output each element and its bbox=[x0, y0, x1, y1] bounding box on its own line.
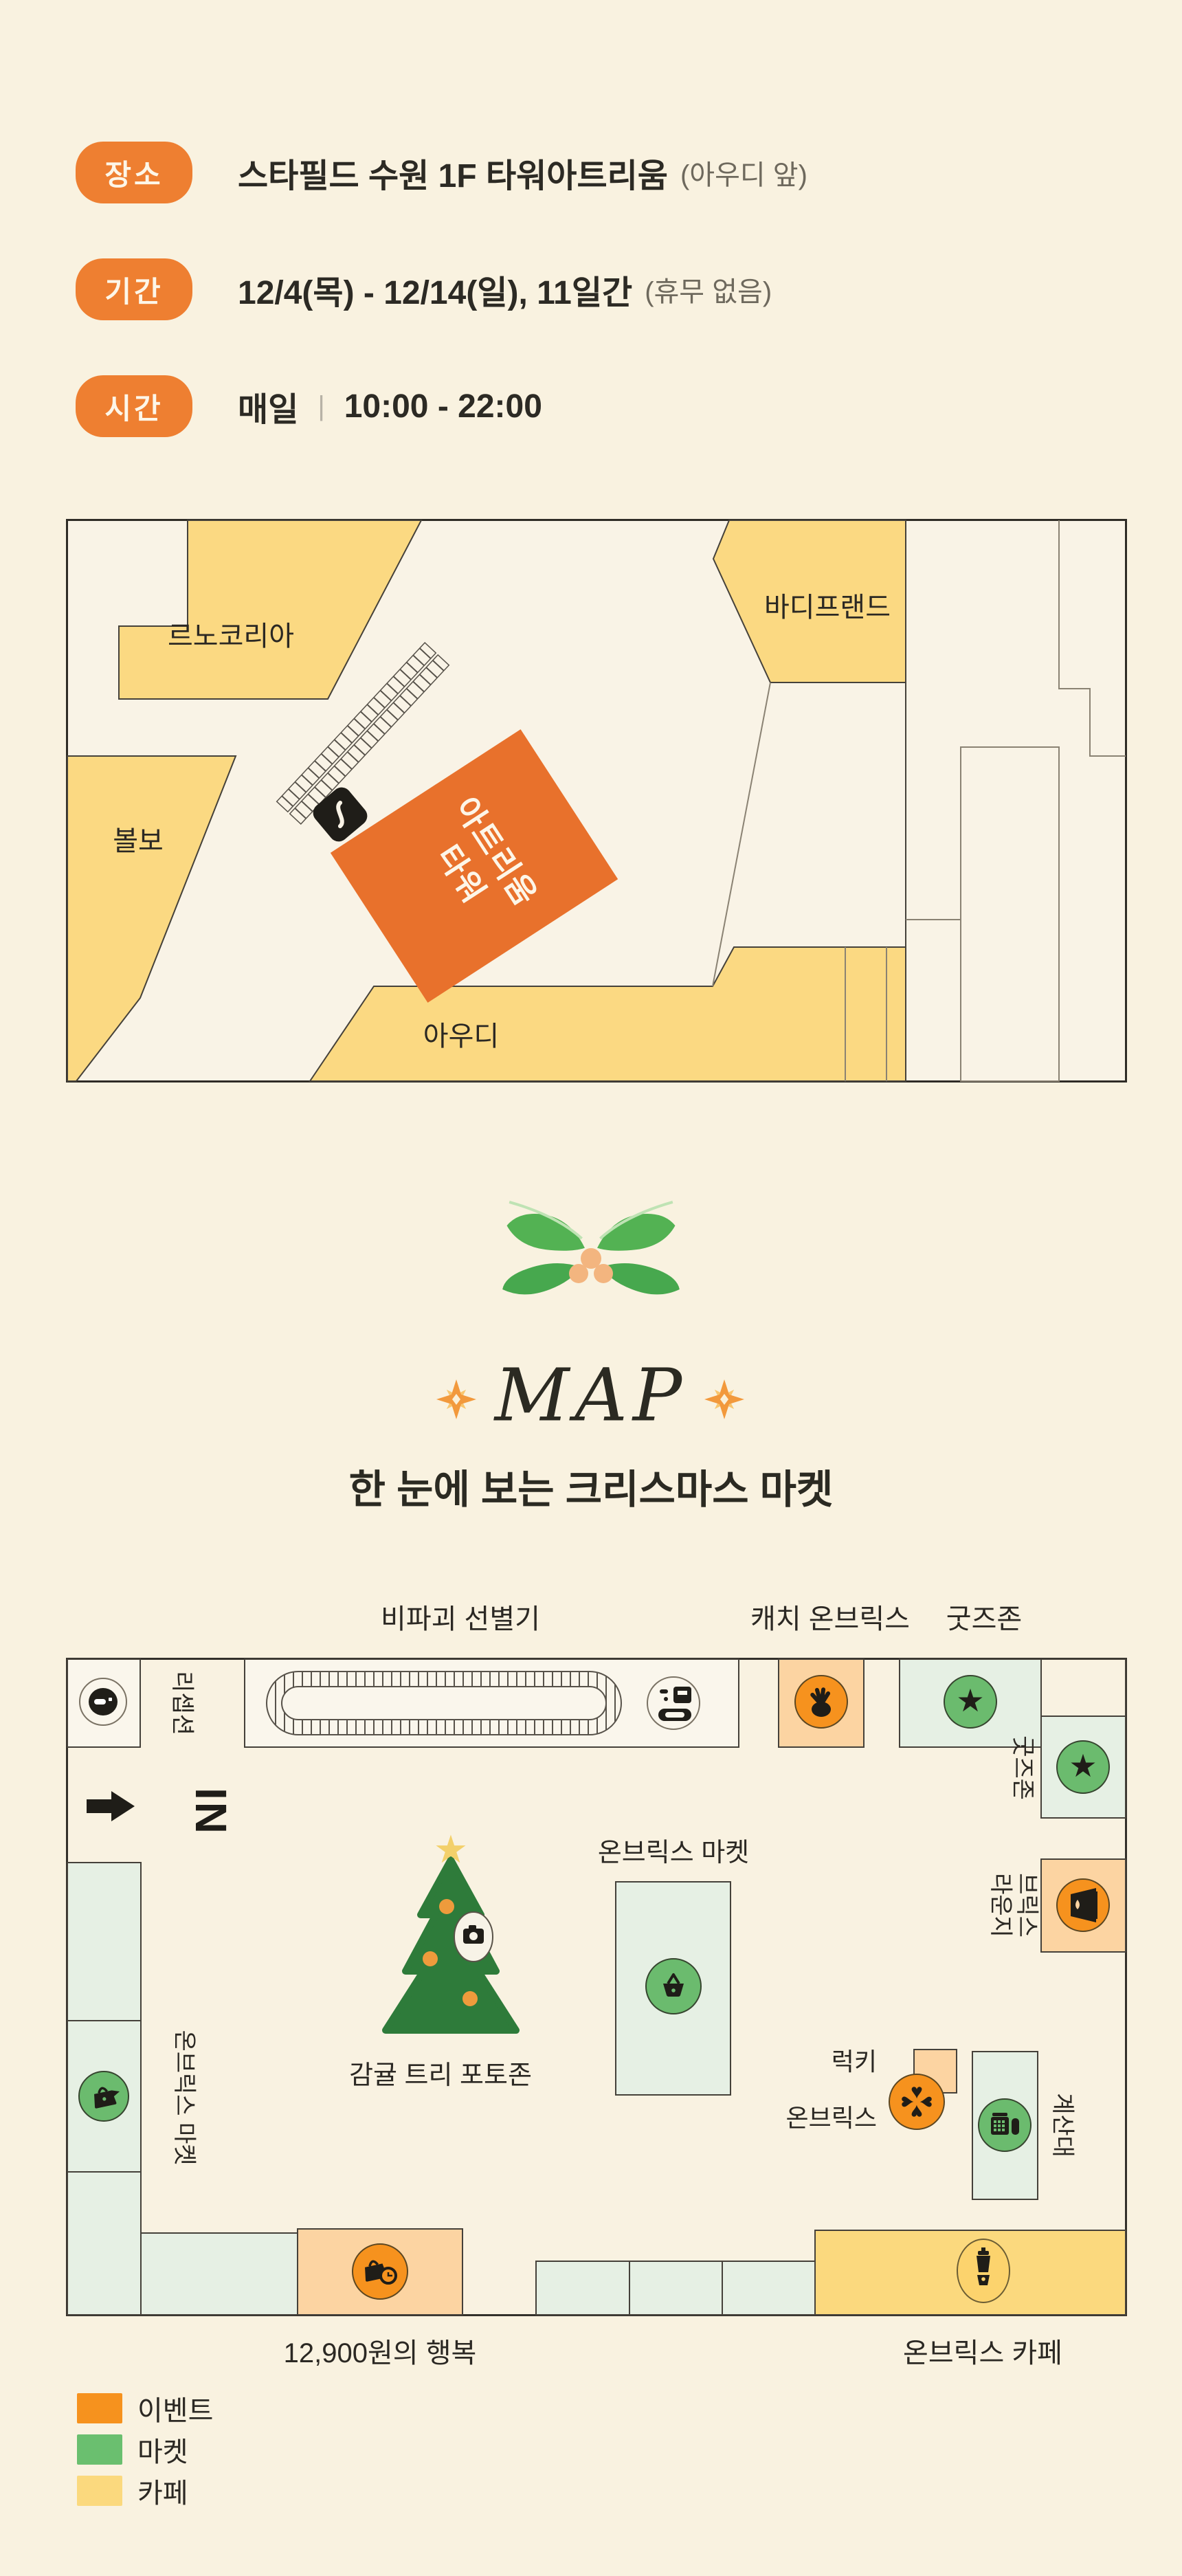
cafe-label: 온브릭스 카페 bbox=[903, 2331, 1062, 2370]
legend-swatch-cafe bbox=[77, 2476, 122, 2506]
legend-item-event: 이벤트 bbox=[77, 2392, 213, 2424]
goods-zone-top-box: ★ bbox=[900, 1659, 1041, 1747]
svg-text:♥: ♥ bbox=[895, 2096, 918, 2108]
time-text: 매일 bbox=[238, 382, 298, 430]
info-row-place: 장소 스타필드 수원 1F 타워아트리움 (아우디 앞) bbox=[76, 141, 807, 204]
place-badge: 장소 bbox=[76, 142, 192, 203]
star-icon: ★ bbox=[956, 1683, 984, 1718]
cafe-box bbox=[815, 2230, 1126, 2315]
blender-icon bbox=[977, 2247, 990, 2285]
legend-label-market: 마켓 bbox=[137, 2430, 188, 2469]
time-hours: 10:00 - 22:00 bbox=[344, 388, 542, 425]
market-center-label: 온브릭스 마켓 bbox=[598, 1839, 749, 1867]
corner-room-box bbox=[1041, 1659, 1126, 1716]
mall-floor-map: 아트리움 타워 르노코리아 볼보 아우디 바디프랜드 bbox=[66, 519, 1127, 1082]
market-left-stalls bbox=[67, 1863, 141, 2315]
place-text: 스타필드 수원 1F 타워아트리움 bbox=[238, 148, 668, 197]
sorter-label: 비파괴 선별기 bbox=[381, 1597, 540, 1636]
legend-swatch-market bbox=[77, 2434, 122, 2465]
lucky-onbrix-spot: ♥ ♥ ♥ ♥ bbox=[889, 2074, 944, 2129]
sparkle-icon bbox=[434, 1377, 478, 1421]
map-subtitle: 한 눈에 보는 크리스마스 마켓 bbox=[349, 1457, 834, 1515]
tree-ornament bbox=[462, 1991, 478, 2006]
map-title: MAP bbox=[495, 1353, 687, 1438]
happiness-event-box bbox=[298, 2229, 462, 2315]
brix-lounge-label-line1: 브릭스 bbox=[1014, 1873, 1040, 1937]
legend-label-cafe: 카페 bbox=[137, 2471, 188, 2511]
market-bottom-stall bbox=[536, 2261, 629, 2315]
tree-ornament bbox=[439, 1899, 454, 1914]
legend-item-market: 마켓 bbox=[77, 2434, 188, 2465]
reception-box bbox=[67, 1659, 140, 1747]
market-left-label: 온브릭스 마켓 bbox=[171, 2030, 197, 2165]
event-poster: 장소 스타필드 수원 1F 타워아트리움 (아우디 앞) 기간 12/4(목) … bbox=[0, 0, 1182, 2576]
legend-swatch-event bbox=[77, 2393, 122, 2423]
period-badge: 기간 bbox=[76, 258, 192, 320]
catch-onbrix-label: 캐치 온브릭스 bbox=[750, 1597, 910, 1636]
checkout-label: 계산대 bbox=[1049, 2093, 1075, 2157]
market-bottom-stall bbox=[141, 2233, 298, 2315]
market-bottom-stall bbox=[629, 2261, 722, 2315]
time-badge: 시간 bbox=[76, 375, 192, 437]
goods-zone-label: 굿즈존 bbox=[946, 1597, 1022, 1636]
tree-photozone-label: 감귤 트리 포토존 bbox=[349, 2061, 532, 2090]
market-bottom-stall bbox=[722, 2261, 815, 2315]
holly-icon bbox=[460, 1196, 722, 1326]
place-note: (아우디 앞) bbox=[680, 153, 807, 192]
market-center-box bbox=[616, 1882, 731, 2095]
brix-lounge-box bbox=[1041, 1859, 1126, 1952]
store-bodyfriend-label: 바디프랜드 bbox=[764, 592, 891, 623]
legend-item-cafe: 카페 bbox=[77, 2475, 188, 2507]
info-row-time: 시간 매일 | 10:00 - 22:00 bbox=[76, 375, 542, 438]
goods-zone-side-label: 굿즈존 bbox=[1010, 1735, 1036, 1800]
sorter-conveyor-box bbox=[245, 1659, 739, 1747]
reception-label: 리셉션 bbox=[169, 1671, 195, 1735]
store-volvo-label: 볼보 bbox=[113, 826, 164, 856]
star-icon: ★ bbox=[1069, 1748, 1097, 1784]
camera-icon bbox=[454, 1912, 493, 1962]
store-audi-label: 아우디 bbox=[423, 1021, 499, 1052]
tree-ornament bbox=[423, 1951, 438, 1966]
store-renault-label: 르노코리아 bbox=[168, 621, 294, 652]
info-row-period: 기간 12/4(목) - 12/14(일), 11일간 (휴무 없음) bbox=[76, 258, 772, 321]
time-divider: | bbox=[317, 391, 324, 422]
entrance-label: IN bbox=[186, 1788, 236, 1836]
lucky-label-line2: 온브릭스 bbox=[786, 2104, 877, 2132]
catch-onbrix-box bbox=[779, 1659, 864, 1747]
lucky-label-line1: 럭키 bbox=[832, 2047, 877, 2076]
happiness-label: 12,900원의 행복 bbox=[284, 2331, 477, 2370]
market-map: 리셉션 IN bbox=[66, 1658, 1127, 2316]
reception-icon bbox=[80, 1678, 126, 1725]
legend-label-event: 이벤트 bbox=[137, 2388, 213, 2428]
checkout-box bbox=[972, 2052, 1038, 2199]
period-text: 12/4(목) - 12/14(일), 11일간 bbox=[238, 265, 632, 313]
brix-lounge-label-line2: 라운지 bbox=[988, 1873, 1014, 1937]
sorter-machine-icon bbox=[647, 1677, 700, 1729]
goods-zone-side-box: ★ bbox=[1041, 1716, 1126, 1818]
tree-star-icon: ★ bbox=[434, 1828, 468, 1871]
sparkle-icon bbox=[702, 1377, 746, 1421]
market-map-border bbox=[67, 1659, 1126, 2316]
period-note: (휴무 없음) bbox=[645, 269, 772, 309]
